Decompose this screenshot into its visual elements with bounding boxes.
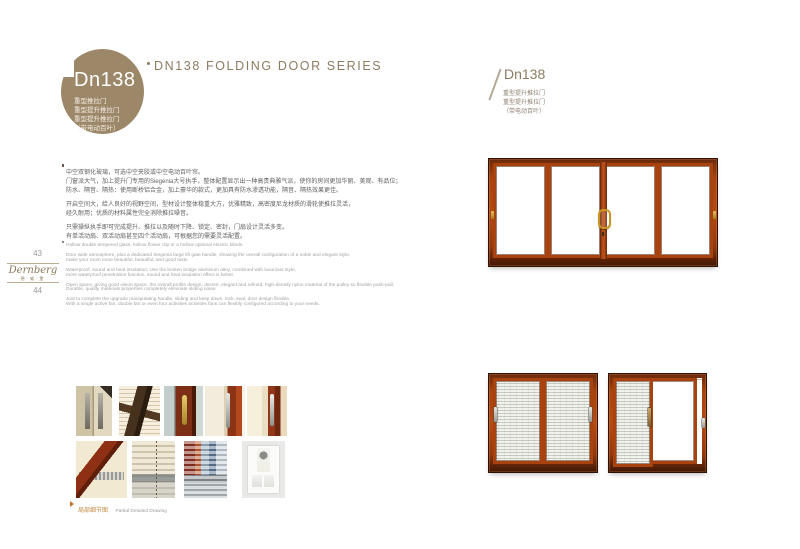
photo-venetian-blinds-colored bbox=[184, 441, 227, 498]
badge-model-number: Dn138 bbox=[74, 69, 135, 92]
badge-line: 重型提升推拉门 bbox=[74, 106, 120, 115]
series-title: DN138 FOLDING DOOR SERIES bbox=[154, 59, 382, 73]
page-number-bottom: 44 bbox=[8, 286, 42, 295]
bar-handle-right-icon bbox=[589, 407, 592, 422]
lock-keyhole-icon bbox=[602, 232, 604, 236]
cn-paragraph: 中空双钢化玻璃，可选中空夹胶或中空电动百叶帘。 门窗派大气，加上提升门专用的Si… bbox=[66, 169, 386, 196]
door-panel bbox=[658, 163, 713, 258]
cn-paragraph: 只需操纵执手即可完成提升、推拉以及随时下降、锁定、密封，门扇设计灵活多变。 有单… bbox=[66, 224, 386, 242]
photo-wall-control-panel bbox=[242, 441, 285, 498]
badge-line: 重型提升推拉门 bbox=[74, 115, 120, 124]
photo-long-bar-handle bbox=[205, 386, 245, 436]
door-panel bbox=[548, 163, 603, 258]
paragraph-bullet-icon bbox=[62, 164, 64, 167]
badge-line: 重型推拉门 bbox=[74, 97, 120, 106]
right-line: 重型提升推拉门 bbox=[503, 90, 545, 99]
gold-knob-left-icon bbox=[491, 211, 494, 219]
gold-lift-handle-icon bbox=[598, 209, 611, 229]
brand-logo: Dernberg 德·威·堡 bbox=[7, 263, 59, 283]
en-paragraph: Open space, giving good vision space, th… bbox=[66, 284, 386, 294]
photo-venetian-blinds-chain bbox=[132, 441, 175, 498]
badge-line: （带电动百叶） bbox=[74, 124, 120, 133]
blinds-panel bbox=[543, 378, 593, 464]
paragraph-bullet-icon bbox=[62, 241, 64, 243]
english-description: Hollow double tempered glass, hollow flo… bbox=[66, 244, 386, 313]
brand-name: Dernberg bbox=[7, 266, 59, 276]
right-model-number: Dn138 bbox=[504, 66, 545, 82]
two-panel-blinds-door-illustration bbox=[488, 373, 598, 473]
en-paragraph: Door wide atmosphere, plus a dedicated S… bbox=[66, 254, 386, 264]
open-blinds-door-illustration bbox=[608, 373, 707, 473]
door-glazing-area bbox=[493, 378, 593, 464]
right-line: （带电动百叶） bbox=[503, 108, 545, 117]
right-line: 重型提升推拉门 bbox=[503, 99, 545, 108]
slash-divider-icon bbox=[488, 69, 501, 101]
cn-paragraph: 开启空间大，给人良好的视野空间，型材设计整体稳重大方，优雅精致，高密度尼龙材质的… bbox=[66, 201, 386, 219]
photo-frame-corner-track bbox=[76, 441, 127, 498]
badge-notch bbox=[54, 44, 74, 77]
gallery-caption-cn: 局部细节图 bbox=[78, 508, 108, 514]
blinds-panel bbox=[493, 378, 543, 464]
en-paragraph: Waterproof, sound and heat insulation: U… bbox=[66, 269, 386, 279]
door-panel bbox=[493, 163, 548, 258]
photo-frame-with-bar-handle bbox=[247, 386, 287, 436]
bar-handle-center-icon bbox=[648, 408, 651, 426]
badge-product-lines: 重型推拉门 重型提升推拉门 重型提升推拉门 （带电动百叶） bbox=[74, 97, 120, 133]
gallery-caption: 局部细节图 Partial Detailed Drawing bbox=[78, 499, 167, 517]
catalog-spread: Dn138 重型推拉门 重型提升推拉门 重型提升推拉门 （带电动百叶） DN13… bbox=[0, 0, 800, 549]
caption-arrow-icon bbox=[70, 501, 74, 507]
brand-subtext: 德·威·堡 bbox=[7, 276, 59, 281]
blinds-panel bbox=[613, 378, 653, 467]
photo-frame-profile-cross-section bbox=[119, 386, 160, 436]
title-bullet-icon bbox=[147, 62, 150, 65]
page-number-top: 43 bbox=[8, 249, 42, 258]
chinese-description: 中空双钢化玻璃，可选中空夹胶或中空电动百叶帘。 门窗派大气，加上提升门专用的Si… bbox=[66, 169, 386, 247]
en-paragraph: Just to complete the upgrade manipulatin… bbox=[66, 298, 386, 308]
door-panel bbox=[603, 163, 658, 258]
photo-sliding-door-pair-handles bbox=[76, 386, 112, 436]
right-product-lines: 重型提升推拉门 重型提升推拉门 （带电动百叶） bbox=[503, 90, 545, 117]
door-glazing-area bbox=[613, 378, 702, 464]
gallery-caption-en: Partial Detailed Drawing bbox=[115, 509, 166, 514]
four-panel-sliding-door-illustration bbox=[488, 158, 718, 267]
photo-gold-curved-handle bbox=[164, 386, 203, 436]
en-paragraph: Hollow double tempered glass, hollow flo… bbox=[66, 244, 386, 249]
bar-handle-left-icon bbox=[494, 407, 497, 422]
clear-glass-panel bbox=[649, 378, 696, 464]
bar-handle-frame-icon bbox=[702, 418, 705, 428]
gold-knob-right-icon bbox=[713, 211, 716, 219]
